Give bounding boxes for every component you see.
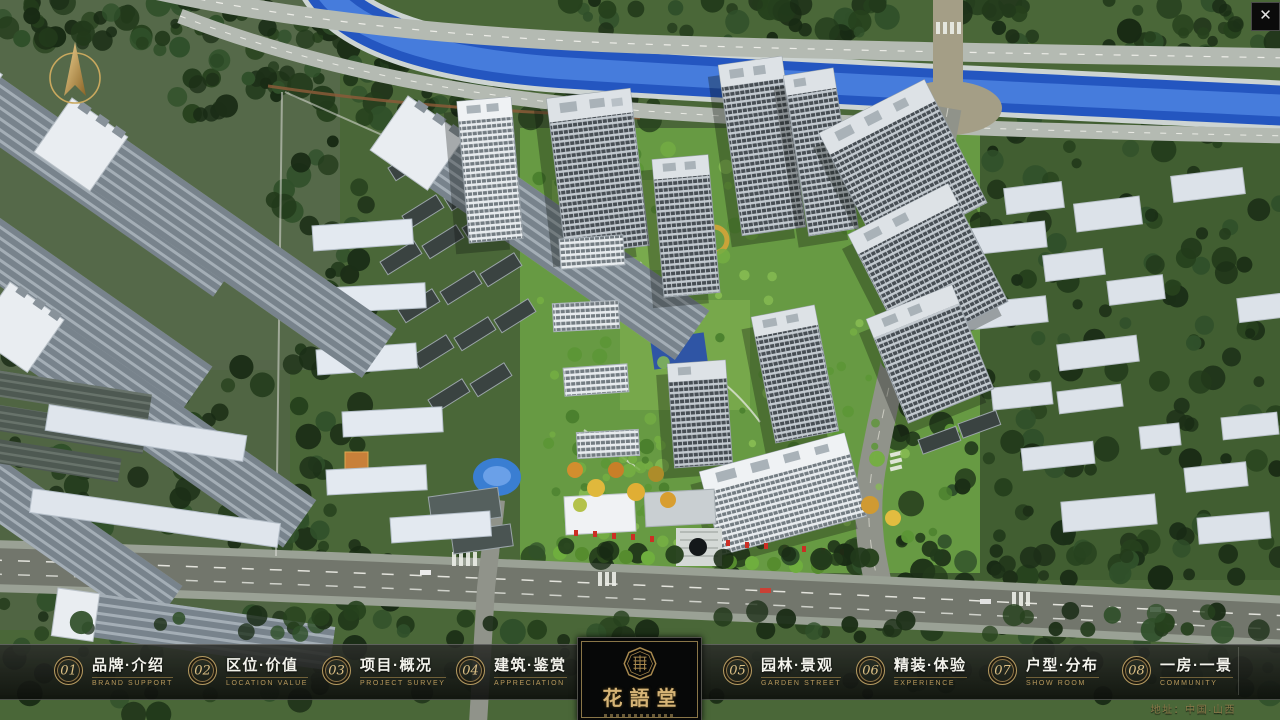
nav-item-interior[interactable]: 06 精装·体验EXPERIENCE	[856, 654, 967, 687]
item-number-badge: 06	[856, 656, 885, 685]
nav-label-zh: 一房·一景	[1160, 654, 1233, 675]
divider-line	[360, 677, 446, 678]
presentation-app: ✕ 01 品牌·介绍BRAND SUPPORT 02 区位·价值LOCATION…	[0, 0, 1280, 720]
item-number-badge: 04	[456, 656, 485, 685]
nav-label-zh: 精装·体验	[894, 654, 967, 675]
item-number-badge: 02	[188, 656, 217, 685]
brand-logo-panel[interactable]: 花語堂	[577, 637, 702, 720]
nav-label-zh: 区位·价值	[226, 654, 308, 675]
nav-label-zh: 项目·概况	[360, 654, 446, 675]
nav-item-community[interactable]: 08 一房·一景COMMUNITY	[1122, 654, 1233, 687]
nav-label-en: SHOW ROOM	[1026, 680, 1099, 687]
nav-item-garden[interactable]: 05 园林·景观GARDEN STREET	[723, 654, 841, 687]
nav-item-project[interactable]: 03 项目·概况PROJECT SURVEY	[322, 654, 446, 687]
item-number-badge: 07	[988, 656, 1017, 685]
nav-label-en: EXPERIENCE	[894, 680, 967, 687]
nav-label-en: COMMUNITY	[1160, 680, 1233, 687]
nav-label-zh: 户型·分布	[1026, 654, 1099, 675]
nav-item-location[interactable]: 02 区位·价值LOCATION VALUE	[188, 654, 308, 687]
nav-label-zh: 园林·景观	[761, 654, 841, 675]
divider-line	[1160, 677, 1233, 678]
divider-line	[494, 677, 567, 678]
divider-line	[894, 677, 967, 678]
item-number-badge: 01	[54, 656, 83, 685]
divider-line	[761, 677, 841, 678]
nav-label-en: GARDEN STREET	[761, 680, 841, 687]
nav-label-en: LOCATION VALUE	[226, 680, 308, 687]
project-aerial-view[interactable]	[0, 0, 1280, 720]
nav-label-zh: 品牌·介绍	[92, 654, 173, 675]
logo-seal-icon	[621, 646, 659, 681]
divider-line	[1026, 677, 1099, 678]
logo-frame: 花語堂	[581, 641, 698, 718]
project-address: 地址：中国·山西	[1151, 701, 1236, 716]
nav-label-en: PROJECT SURVEY	[360, 680, 446, 687]
nav-label-zh: 建筑·鉴赏	[494, 654, 567, 675]
item-number-badge: 08	[1122, 656, 1151, 685]
brand-name: 花語堂	[596, 682, 684, 711]
brand-caption-line	[604, 714, 676, 717]
close-button[interactable]: ✕	[1251, 2, 1280, 31]
item-number-badge: 05	[723, 656, 752, 685]
nav-item-floorplans[interactable]: 07 户型·分布SHOW ROOM	[988, 654, 1099, 687]
nav-item-architecture[interactable]: 04 建筑·鉴赏APPRECIATION	[456, 654, 567, 687]
divider-line	[92, 677, 173, 678]
bar-divider	[1238, 647, 1239, 695]
nav-item-brand[interactable]: 01 品牌·介绍BRAND SUPPORT	[54, 654, 173, 687]
nav-label-en: APPRECIATION	[494, 680, 567, 687]
item-number-badge: 03	[322, 656, 351, 685]
nav-label-en: BRAND SUPPORT	[92, 680, 173, 687]
divider-line	[226, 677, 308, 678]
